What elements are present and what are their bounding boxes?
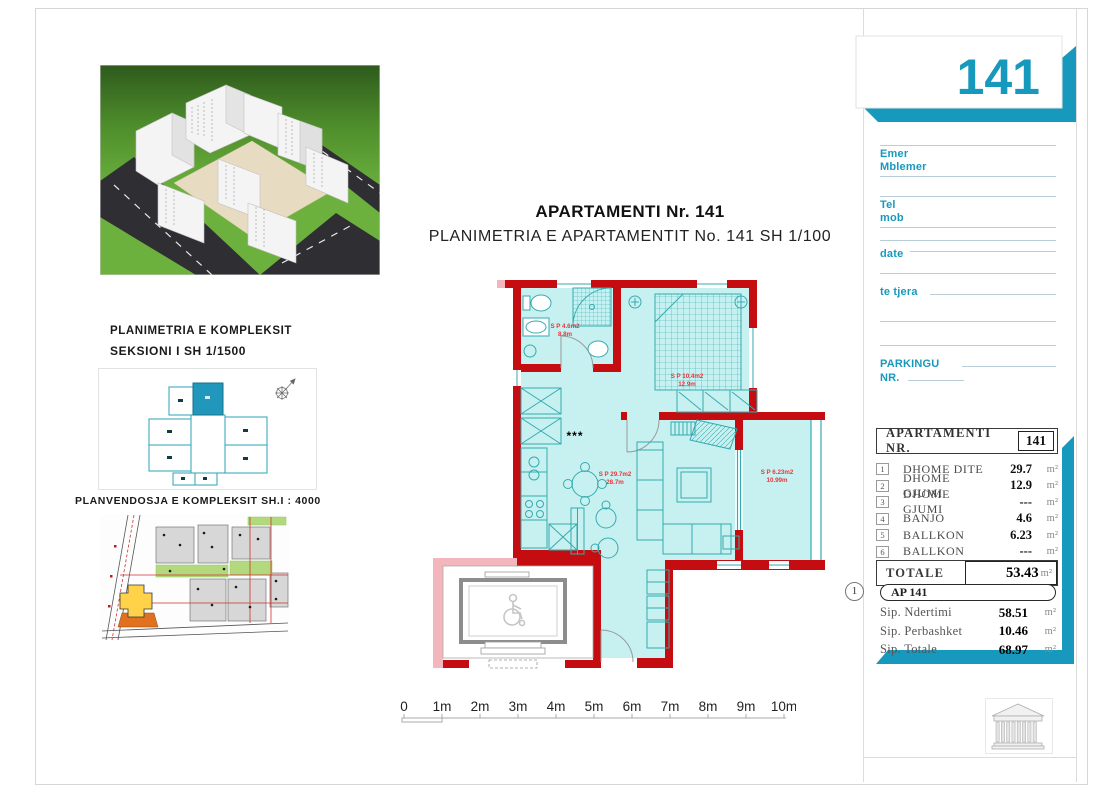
scale-bar: 0 1m 2m 3m 4m 5m 6m 7m 8m 9m 10m (396, 698, 796, 724)
floor-plan: *** (425, 272, 845, 690)
field-label-parkingu: PARKINGU (880, 358, 939, 370)
scale-tick: 1m (433, 699, 452, 714)
table-title: APARTAMENTI NR. (886, 426, 1018, 456)
scale-tick: 0 (400, 699, 408, 714)
table-row: 6 BALLKON --- m² (876, 544, 1058, 561)
room-label-ballkon: S P 6.23m2 (761, 469, 794, 476)
total-unit: m² (1041, 568, 1052, 579)
scale-tick: 8m (699, 699, 718, 714)
room-label-banjo: S P 4.6m2 (550, 323, 580, 330)
drawing-sheet: PLANIMETRIA E KOMPLEKSIT SEKSIONI I SH 1… (0, 0, 1119, 790)
svg-text:28.7m: 28.7m (606, 479, 624, 486)
complex-3d-render (100, 65, 380, 275)
field-label-te-tjera: te tjera (880, 286, 918, 298)
room-area: 29.7 (992, 462, 1032, 477)
room-label-dhome-dite: S P 29.7m2 (599, 471, 632, 478)
room-label-dhome-gjumi: S P 10.4m2 (671, 373, 704, 380)
table-row: 4 BANJO 4.6 m² (876, 511, 1058, 528)
table-row: 5 BALLKON 6.23 m² (876, 527, 1058, 544)
scale-tick: 3m (509, 699, 528, 714)
field-label-nr: NR. (880, 372, 900, 384)
room-area: 4.6 (992, 511, 1032, 526)
scale-tick: 9m (737, 699, 756, 714)
elevator-lobby (443, 566, 593, 668)
room-unit: m² (1032, 546, 1058, 557)
sheet-title: APARTAMENTI Nr. 141 (380, 202, 880, 222)
total-value-box: 53.43 m² (965, 561, 1057, 585)
shaft-label: *** (566, 429, 583, 443)
summary-row: Sip. Ndertimi 58.51 m² (880, 604, 1056, 622)
summary-title: AP 141 (880, 584, 1056, 601)
total-label: TOTALE (886, 566, 965, 581)
room-unit: m² (1032, 497, 1058, 508)
complex-plan-caption-line2: SEKSIONI I SH 1/1500 (110, 344, 246, 358)
room-area: 6.23 (992, 528, 1032, 543)
table-apartment-number: 141 (1018, 431, 1054, 451)
scale-tick: 4m (547, 699, 566, 714)
scale-tick: 10m (771, 699, 796, 714)
room-unit: m² (1032, 530, 1058, 541)
summary-marker: 1 (845, 582, 864, 601)
section-key-plan (98, 368, 317, 490)
compass-icon (275, 379, 295, 400)
room-unit: m² (1032, 513, 1058, 524)
site-plan-caption: PLANVENDOSJA E KOMPLEKSIT SH.I : 4000 (75, 495, 321, 507)
total-value: 53.43 (1006, 565, 1039, 582)
total-row: TOTALE 53.43 m² (876, 560, 1058, 586)
area-table-header: APARTAMENTI NR. 141 (876, 428, 1058, 454)
apartment-number-plate: 141 (854, 34, 1086, 126)
room-name: BALLKON (903, 544, 992, 559)
room-name: BALLKON (903, 528, 992, 543)
summary-block: AP 141 Sip. Ndertimi 58.51 m² Sip. Perba… (880, 584, 1056, 659)
temple-icon (986, 699, 1050, 751)
scale-tick: 2m (471, 699, 490, 714)
scale-tick: 6m (623, 699, 642, 714)
room-area: --- (992, 544, 1032, 559)
field-label-tel: Tel (880, 199, 896, 211)
complex-plan-caption-line1: PLANIMETRIA E KOMPLEKSIT (110, 325, 292, 337)
svg-text:10.99m: 10.99m (767, 477, 788, 484)
field-label-mob: mob (880, 212, 904, 224)
field-label-mblemer: Mblemer (880, 161, 927, 173)
scale-tick: 7m (661, 699, 680, 714)
company-logo (985, 698, 1053, 754)
apartment-number: 141 (957, 49, 1040, 105)
sheet-subtitle: PLANIMETRIA E APARTAMENTIT No. 141 SH 1/… (380, 228, 880, 246)
svg-text:12.9m: 12.9m (678, 381, 696, 388)
summary-row: Sip. Perbashket 10.46 m² (880, 623, 1056, 641)
room-unit: m² (1032, 480, 1058, 491)
scale-tick: 5m (585, 699, 604, 714)
table-row: 3 DHOME GJUMI --- m² (876, 494, 1058, 511)
site-plan (100, 515, 290, 640)
svg-text:8.8m: 8.8m (558, 331, 573, 338)
field-label-emer: Emer (880, 148, 908, 160)
area-table: APARTAMENTI NR. 141 1 DHOME DITE 29.7 m²… (876, 428, 1058, 560)
summary-row: Sip. Totale 68.97 m² (880, 641, 1056, 659)
room-unit: m² (1032, 464, 1058, 475)
room-area: 12.9 (992, 478, 1032, 493)
room-name: BANJO (903, 511, 992, 526)
field-label-date: date (880, 248, 903, 260)
room-area: --- (992, 495, 1032, 510)
titleblock-divider (863, 757, 1077, 758)
